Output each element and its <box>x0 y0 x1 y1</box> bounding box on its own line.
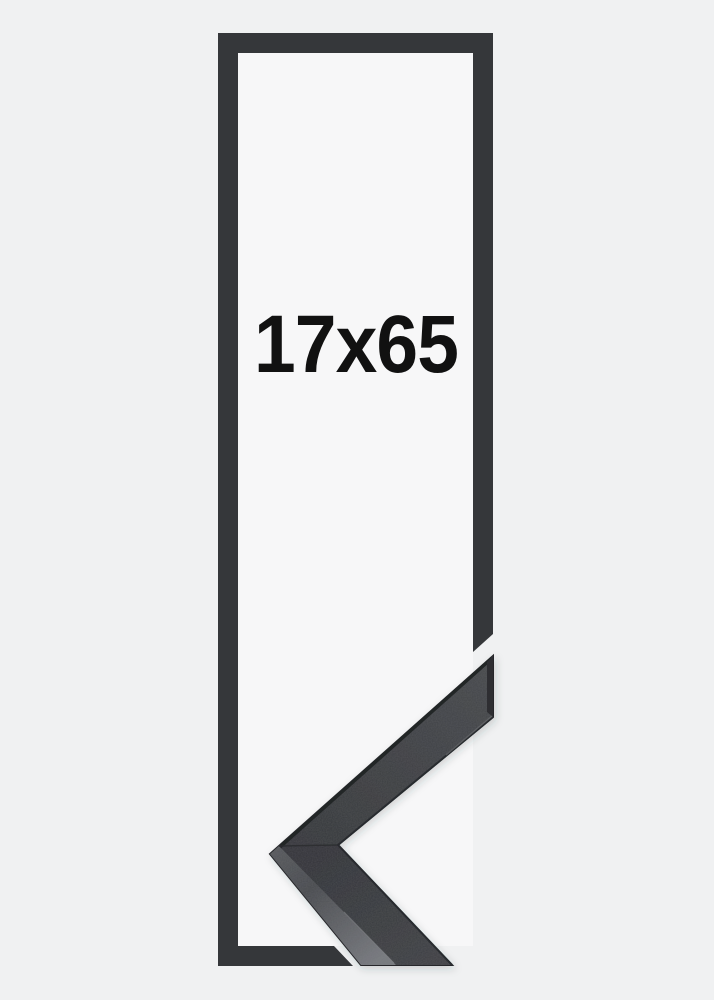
frame-outline-left <box>218 33 238 966</box>
corner-sample-miter-seam <box>279 845 338 846</box>
frame-outline-right <box>473 33 493 652</box>
frame-product-image: 17x65 <box>0 0 714 1000</box>
frame-outline-bottom <box>218 946 353 966</box>
corner-sample-tip-cut-facet <box>487 656 493 717</box>
frame-size-mockup: 17x65 <box>0 0 714 1000</box>
frame-outline-top <box>218 33 493 53</box>
size-label: 17x65 <box>254 299 458 390</box>
